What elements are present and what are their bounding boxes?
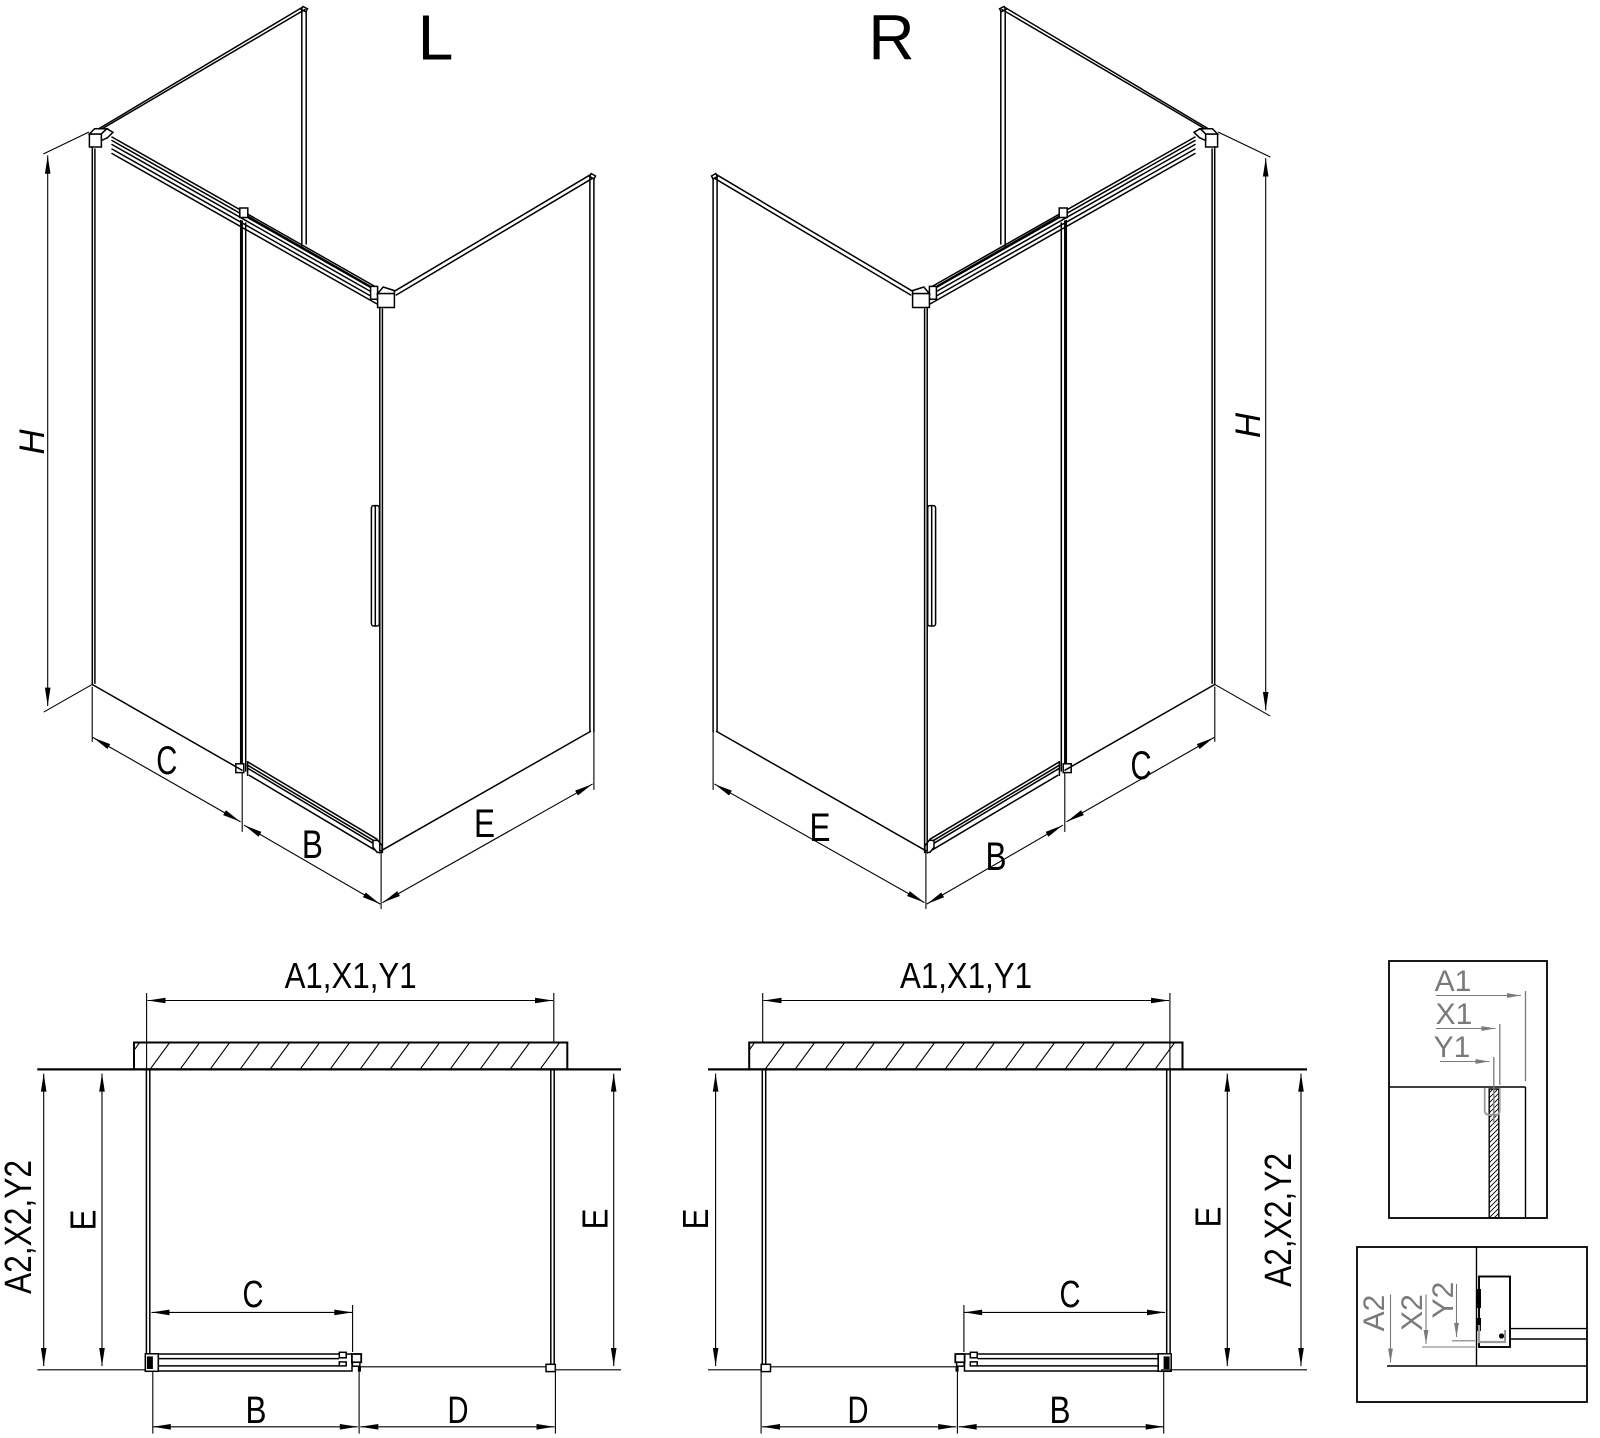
svg-text:Y1: Y1 — [1434, 1031, 1471, 1064]
svg-text:H: H — [13, 429, 52, 455]
svg-text:E: E — [675, 1209, 716, 1230]
svg-text:B: B — [302, 823, 323, 867]
svg-text:A2,X2,Y2: A2,X2,Y2 — [0, 1160, 40, 1294]
svg-text:X1: X1 — [1436, 998, 1473, 1031]
svg-text:C: C — [243, 1274, 264, 1316]
svg-text:R: R — [868, 2, 914, 74]
svg-text:D: D — [448, 1390, 469, 1432]
svg-text:D: D — [848, 1390, 869, 1432]
svg-text:B: B — [246, 1390, 267, 1432]
svg-text:E: E — [63, 1210, 104, 1231]
svg-text:C: C — [156, 739, 177, 783]
svg-text:C: C — [1131, 744, 1152, 788]
svg-text:A1,X1,Y1: A1,X1,Y1 — [900, 955, 1032, 996]
svg-text:A2: A2 — [1358, 1295, 1391, 1332]
svg-text:L: L — [418, 2, 454, 74]
svg-text:C: C — [1060, 1274, 1081, 1316]
svg-text:H: H — [1229, 412, 1268, 438]
svg-text:E: E — [575, 1209, 616, 1230]
svg-text:A2,X2,Y2: A2,X2,Y2 — [1258, 1153, 1300, 1287]
svg-text:A1: A1 — [1435, 965, 1472, 998]
svg-text:B: B — [986, 835, 1007, 879]
svg-text:E: E — [474, 802, 495, 846]
svg-text:B: B — [1050, 1390, 1071, 1432]
svg-text:E: E — [810, 806, 831, 850]
svg-text:E: E — [1188, 1207, 1229, 1228]
svg-text:X2: X2 — [1396, 1294, 1429, 1331]
svg-text:Y2: Y2 — [1427, 1282, 1460, 1319]
svg-text:A1,X1,Y1: A1,X1,Y1 — [285, 955, 417, 996]
